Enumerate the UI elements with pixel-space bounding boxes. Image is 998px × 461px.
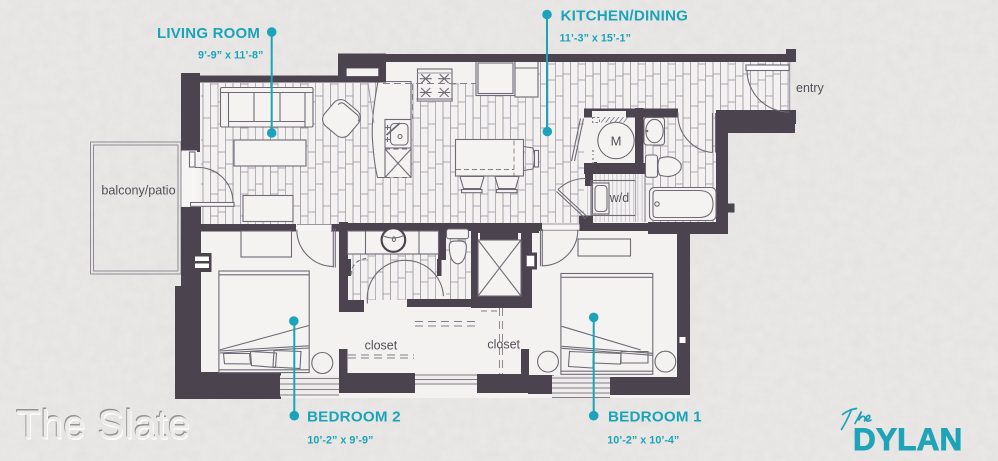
svg-text:M: M — [611, 134, 622, 149]
svg-text:closet: closet — [487, 338, 520, 352]
svg-text:BEDROOM 1: BEDROOM 1 — [608, 409, 702, 426]
svg-text:9’-9” x 11’-8”: 9’-9” x 11’-8” — [198, 50, 263, 62]
svg-text:closet: closet — [365, 339, 398, 353]
svg-text:KITCHEN/DINING: KITCHEN/DINING — [561, 8, 689, 25]
svg-text:10’-2” x 9’-9”: 10’-2” x 9’-9” — [307, 435, 373, 447]
svg-text:10’-2” x 10’-4”: 10’-2” x 10’-4” — [607, 435, 679, 447]
svg-text:DYLAN: DYLAN — [853, 421, 963, 457]
svg-text:w/d: w/d — [609, 191, 630, 205]
svg-text:entry: entry — [796, 81, 825, 95]
svg-text:The Slate: The Slate — [16, 403, 190, 447]
svg-text:balcony/patio: balcony/patio — [101, 184, 175, 198]
svg-text:11’-3” x 15’-1”: 11’-3” x 15’-1” — [560, 33, 631, 45]
svg-text:LIVING ROOM: LIVING ROOM — [157, 25, 260, 42]
svg-text:BEDROOM 2: BEDROOM 2 — [307, 409, 401, 426]
